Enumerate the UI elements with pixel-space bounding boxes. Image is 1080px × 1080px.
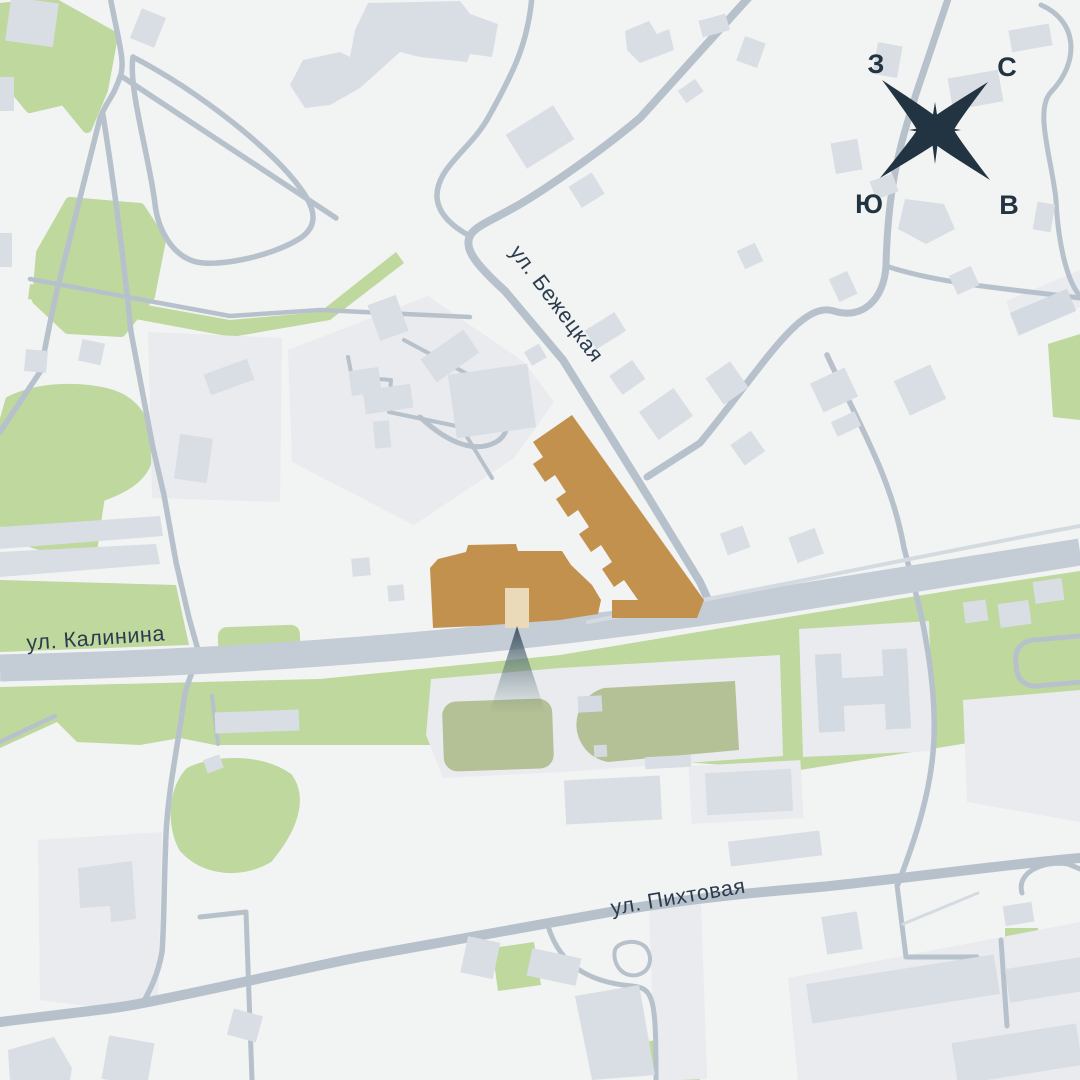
- compass-north-label: С: [997, 52, 1017, 82]
- city-map[interactable]: ул. Калинина ул. Бежецкая ул. Пихтовая З…: [0, 0, 1080, 1080]
- building: [5, 0, 59, 47]
- compass-east-label: В: [999, 190, 1019, 220]
- building: [997, 600, 1031, 628]
- pad: [38, 832, 162, 1010]
- building: [963, 599, 989, 623]
- building: [837, 676, 888, 707]
- pad: [148, 332, 282, 502]
- building: [373, 420, 391, 448]
- building: [1033, 578, 1065, 604]
- compass-west-label: З: [868, 49, 885, 79]
- building: [174, 434, 213, 483]
- building: [594, 745, 608, 758]
- building: [705, 769, 793, 815]
- building: [448, 364, 536, 439]
- building: [578, 695, 603, 712]
- green-park: [176, 763, 295, 868]
- building: [78, 339, 105, 365]
- map-canvas[interactable]: ул. Калинина ул. Бежецкая ул. Пихтовая З…: [0, 0, 1080, 1080]
- compass-south-label: Ю: [855, 189, 883, 219]
- building: [215, 710, 300, 734]
- entrance-highlight[interactable]: [505, 588, 529, 628]
- green-area: [1048, 334, 1080, 420]
- building: [564, 776, 662, 825]
- building: [0, 233, 12, 267]
- building: [351, 557, 371, 577]
- building: [831, 139, 863, 174]
- building: [102, 1035, 155, 1080]
- building: [0, 77, 14, 111]
- building: [24, 349, 48, 373]
- building: [645, 755, 692, 769]
- building: [387, 584, 404, 601]
- pad: [963, 690, 1080, 822]
- building: [821, 911, 863, 954]
